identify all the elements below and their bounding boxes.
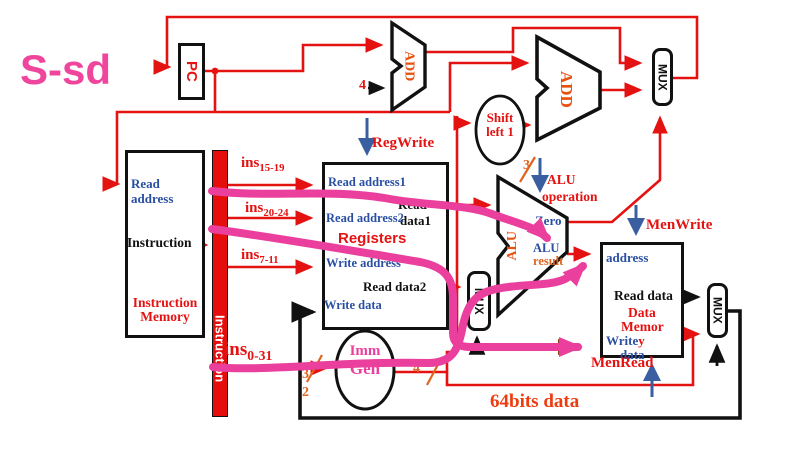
im-address-label: address <box>131 192 173 206</box>
reg-read-data2: Read data2 <box>363 280 426 294</box>
alu-result-l2: result <box>533 255 563 268</box>
instruction-bar: Instruction <box>212 150 228 417</box>
reg-read-data1-l1: Read <box>398 198 427 212</box>
dm-write-label: Writey <box>606 334 645 348</box>
registers-title: Registers <box>338 231 406 247</box>
alu-label: ALU <box>505 231 521 261</box>
imm-width-lo: 2 <box>302 386 309 401</box>
datapath-diagram: PC Instruction MUX MUX MUX ADD ADD ALU S… <box>0 0 810 449</box>
page-title: S-sd <box>20 48 111 92</box>
mux-right: MUX <box>707 283 728 338</box>
reg-read-address2: Read address2 <box>326 212 404 225</box>
junction-dot <box>212 68 219 75</box>
add2-label-wrap: ADD <box>543 58 589 120</box>
imm-width-hi: 3 <box>302 368 309 383</box>
mux-mid: MUX <box>467 271 491 331</box>
wire-pc-to-add1 <box>205 45 381 71</box>
aluop-l1: ALU <box>547 173 576 187</box>
im-instruction-label: Instruction <box>127 236 192 250</box>
pc-increment-width: 4 <box>359 79 366 94</box>
im-read-label: Read <box>131 177 160 191</box>
alu-label-wrap: ALU <box>500 215 526 277</box>
imm-gen-label: Imm Gen <box>337 344 393 378</box>
ins-0-31-label: ins0-31 <box>224 340 272 363</box>
add1-label-wrap: ADD <box>392 30 425 102</box>
dm-read-data: Read data <box>614 289 673 303</box>
wire-to-readaddress <box>117 180 118 184</box>
pc-box: PC <box>178 43 205 100</box>
mux-right-label: MUX <box>711 297 725 324</box>
reg-read-data1-l2: data1 <box>400 214 431 228</box>
mux-mid-label: MUX <box>472 288 486 315</box>
shift-left-label: Shift left 1 <box>477 111 523 138</box>
alu-zero-label: Zero <box>535 214 561 228</box>
imm-out-width: 4 <box>413 362 420 377</box>
ins-15-19-label: ins15-19 <box>241 156 285 174</box>
reg-read-address1: Read address1 <box>328 176 406 189</box>
regwrite-label: RegWrite <box>372 136 434 152</box>
ins-7-11-label: ins7-11 <box>241 248 279 266</box>
reg-write-data: Write data <box>324 299 382 312</box>
mux-top-label: MUX <box>656 64 670 91</box>
mux-top: MUX <box>652 48 673 106</box>
add2-label: ADD <box>556 71 576 108</box>
wire-mux-to-pc <box>167 17 697 78</box>
bits-caption: 64bits data <box>490 392 579 412</box>
dm-address: address <box>606 251 648 265</box>
aluop-l2: operation <box>542 190 598 204</box>
aluop-width: 3 <box>523 159 530 174</box>
wire-zero-to-mux-select <box>568 118 660 222</box>
wire-add1-to-mux <box>425 28 640 63</box>
menwrite-label: MenWrite <box>646 218 712 234</box>
menread-label: MenRead <box>591 356 654 372</box>
add1-label: ADD <box>401 51 417 81</box>
pc-label: PC <box>183 61 200 82</box>
ins-20-24-label: ins20-24 <box>245 201 289 219</box>
im-name: Instruction Memory <box>128 296 202 324</box>
wire-immgen-up <box>393 352 457 372</box>
reg-write-address: Write address <box>326 257 401 270</box>
